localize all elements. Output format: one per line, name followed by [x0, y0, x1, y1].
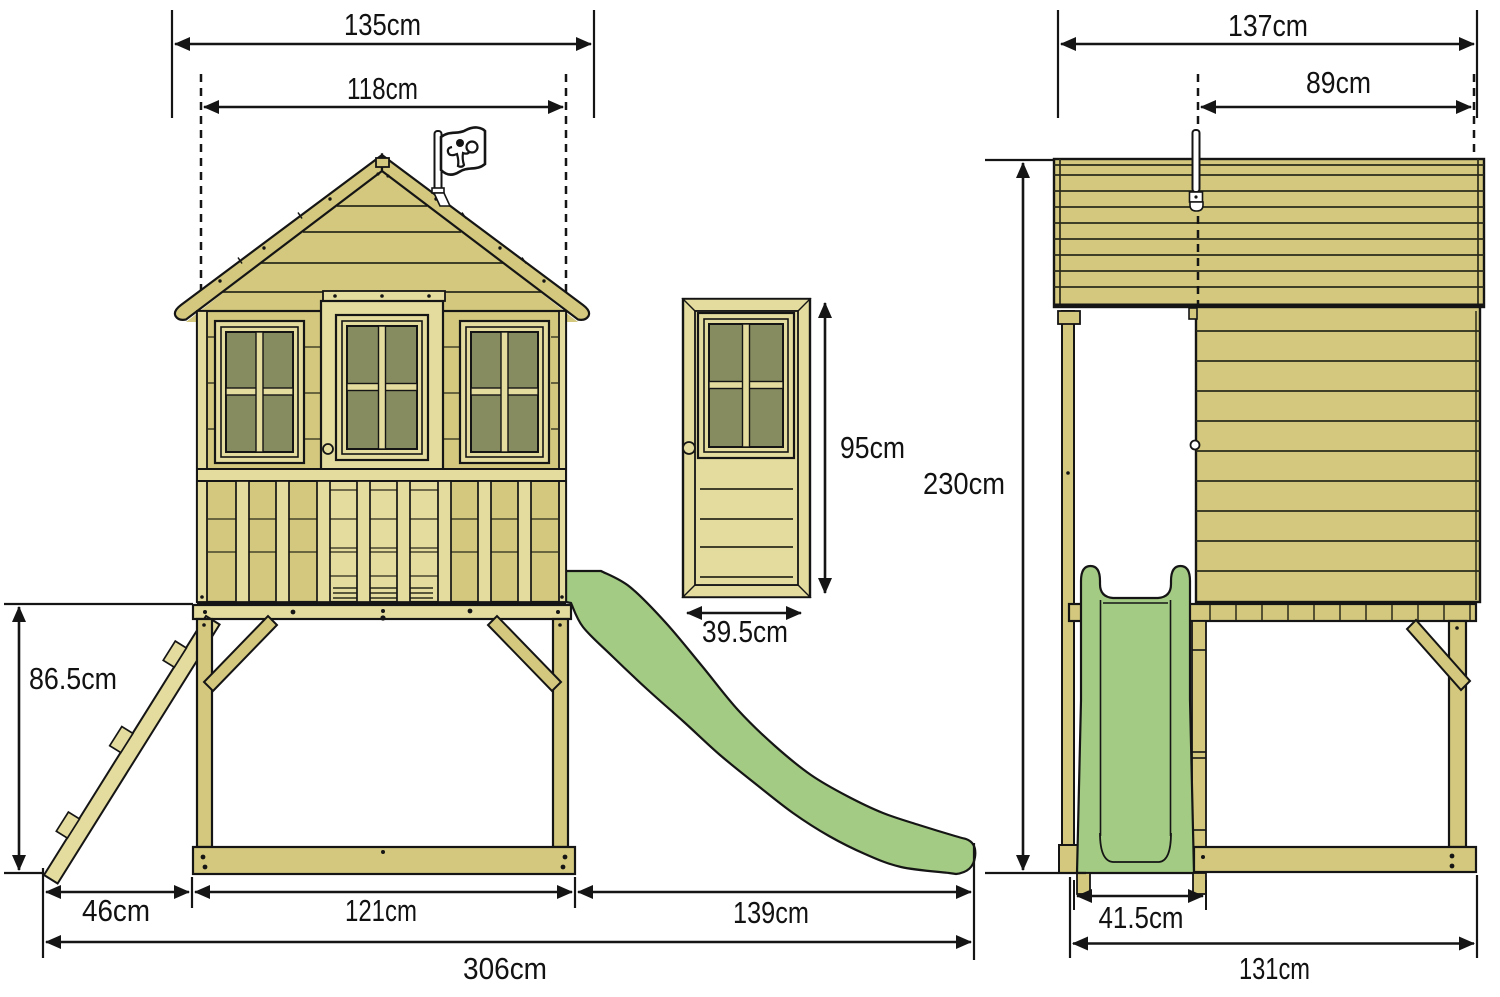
svg-text:41.5cm: 41.5cm [1099, 900, 1184, 935]
svg-text:95cm: 95cm [840, 430, 905, 465]
svg-text:230cm: 230cm [923, 466, 1005, 501]
svg-text:139cm: 139cm [733, 895, 809, 930]
svg-text:121cm: 121cm [345, 893, 417, 928]
svg-text:306cm: 306cm [463, 951, 547, 986]
svg-text:46cm: 46cm [82, 893, 150, 928]
svg-text:137cm: 137cm [1228, 8, 1308, 43]
svg-text:39.5cm: 39.5cm [702, 614, 788, 649]
svg-text:89cm: 89cm [1306, 65, 1371, 100]
svg-text:118cm: 118cm [347, 71, 418, 106]
svg-text:86.5cm: 86.5cm [29, 661, 117, 696]
svg-text:131cm: 131cm [1239, 951, 1310, 986]
svg-text:135cm: 135cm [344, 7, 421, 42]
